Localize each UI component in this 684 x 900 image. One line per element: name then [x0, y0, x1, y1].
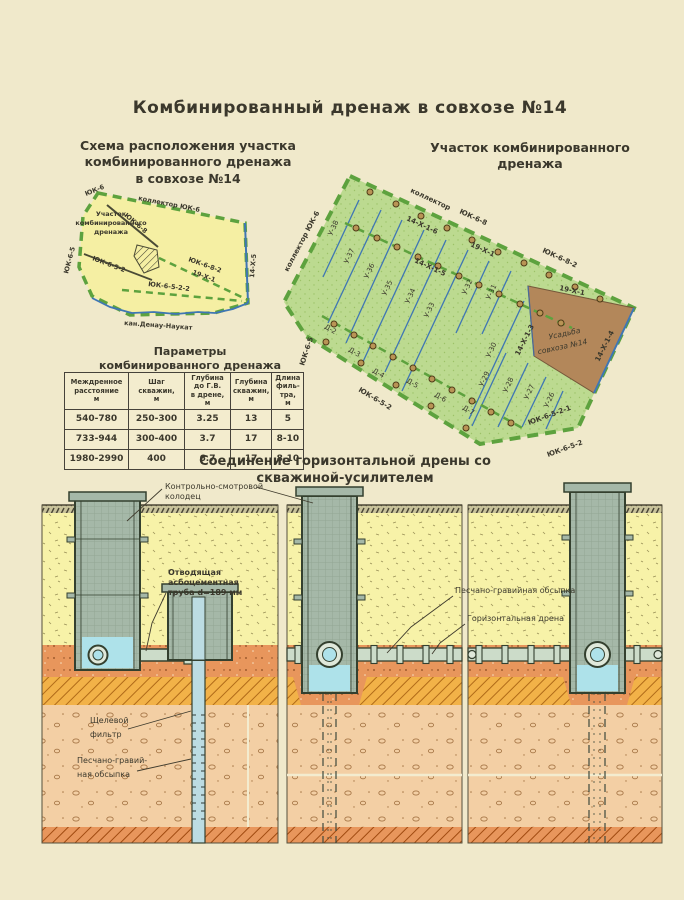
- label-plot1: Участок: [96, 210, 127, 218]
- col-header: Шагскважин,м: [129, 373, 185, 410]
- site-map-title-line1: Участок комбинированного: [400, 140, 660, 156]
- table-title: Параметры комбинированного дренажа: [70, 345, 310, 373]
- schematic-map-title-line1: Схема расположения участка: [48, 138, 328, 154]
- col-header: Междренноерасстоянием: [65, 373, 129, 410]
- label-x145: 14-Х-5: [248, 253, 258, 278]
- well-cap: [69, 492, 146, 501]
- table-title-line2: комбинированного дренажа: [70, 359, 310, 373]
- col-header: Глубинадо Г.В.в дрене,м: [185, 373, 231, 410]
- label-canal: кан.Денау-Наукат: [124, 319, 193, 332]
- label-backfill-2: ная обсыпка: [77, 770, 130, 779]
- panel-left: [42, 492, 278, 843]
- label-uk65: ЮК-6-5: [62, 246, 77, 275]
- label-outlet-pipe-2: асбоцементная: [168, 577, 239, 587]
- well-cap: [564, 483, 631, 492]
- schematic-map: ЮК-6 коллектор ЮК-6 ЮК-6-8 Участок комби…: [52, 182, 296, 334]
- section-title-line1: Соединение горизонтальной дрены со: [130, 454, 560, 471]
- cross-section-figure: Контрольно-смотровой колодец Отводящая а…: [35, 475, 675, 865]
- pipe-end-circle: [654, 651, 662, 659]
- horizontal-drain-pipe: [468, 648, 662, 661]
- page-background: Комбинированный дренаж в совхозе №14 Схе…: [0, 0, 684, 900]
- table-row: 733-944300-400 3.717 8-10: [65, 429, 304, 449]
- label-inspection-well-2: колодец: [165, 492, 201, 501]
- label-uk652-a: ЮК-6-5-2: [357, 386, 393, 412]
- label-backfill-full: Песчано-гравийная обсыпка: [455, 586, 575, 595]
- label-outlet-pipe-1: Отводящая: [168, 568, 221, 577]
- col-header: Глубинаскважин,м: [231, 373, 272, 410]
- label-outlet-pipe-3: труба d=189 мм: [168, 587, 242, 597]
- label-filter-2: фильтр: [90, 730, 122, 739]
- label-backfill-1: Песчано-гравий-: [77, 756, 147, 765]
- well-water: [309, 665, 350, 691]
- label-plot3: дренажа: [94, 228, 128, 236]
- label-uk68: ЮК-6-8: [458, 208, 488, 228]
- table-row: 540-780250-300 3.2513 5: [65, 409, 304, 429]
- col-header: Длинафиль-тра,м: [272, 373, 304, 410]
- panel-right: [468, 483, 662, 843]
- label-plot2: комбинированного: [75, 219, 147, 227]
- page-title: Комбинированный дренаж в совхозе №14: [40, 98, 660, 118]
- table-title-line1: Параметры: [70, 345, 310, 359]
- label-inspection-well-1: Контрольно-смотровой: [165, 482, 263, 491]
- panel-middle: [287, 487, 462, 843]
- label-filter-1: Щелевой: [90, 716, 129, 725]
- well-water: [577, 665, 618, 691]
- label-horizontal-drain: Горизонтальная дрена: [467, 614, 564, 623]
- site-map: У-38 У-37 У-36 У-35 У-34 У-33 У-32 У-31 …: [276, 166, 658, 468]
- well-cap: [296, 487, 363, 496]
- pipe-end-circle: [468, 651, 476, 659]
- table-header-row: Междренноерасстоянием Шагскважин,м Глуби…: [65, 373, 304, 410]
